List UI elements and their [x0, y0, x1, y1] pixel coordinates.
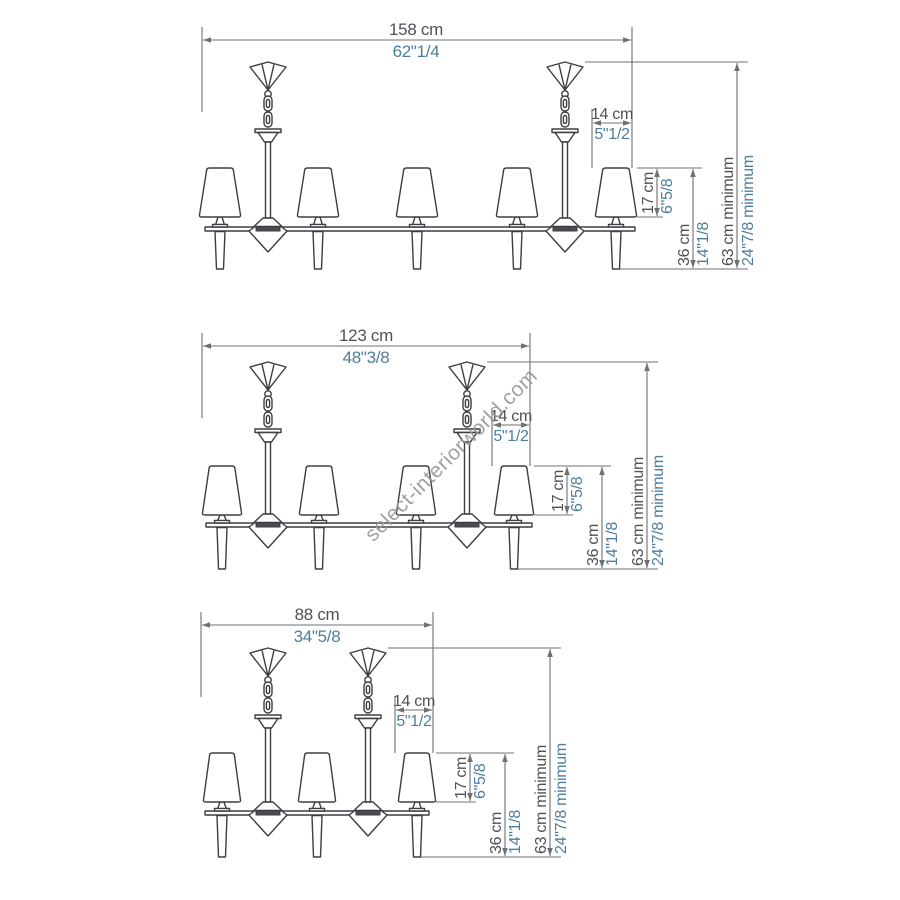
- fixture-art-layer: [199, 62, 636, 269]
- lamp-stem-spike: [312, 816, 322, 858]
- suspension-rod: [563, 142, 568, 218]
- body-height-label-cm: 36 cm: [676, 224, 693, 266]
- chain-link: [264, 396, 272, 411]
- ceiling-cone: [547, 62, 583, 90]
- min-height-label-inch: 24"7/8 minimum: [740, 155, 757, 266]
- suspension-rod: [366, 728, 371, 802]
- lamp-neck-flange: [311, 224, 326, 227]
- min-height-label-cm: 63 cm minimum: [720, 157, 737, 266]
- lamp-neck-flange: [215, 808, 230, 811]
- canopy-label-cm: 14 cm: [591, 106, 633, 123]
- chandelier-dimension-diagram: 158 cm62"1/414 cm5"1/217 cm6"5/836 cm14"…: [0, 0, 900, 900]
- lamp-neck-flange: [409, 520, 424, 523]
- lamp-neck-flange: [410, 224, 425, 227]
- canopy-label-inch: 5"1/2: [594, 126, 630, 143]
- lamp-stem-spike: [512, 232, 522, 270]
- ceiling-cone: [449, 362, 485, 390]
- ceiling-cone: [350, 648, 386, 676]
- chain-link: [264, 412, 272, 427]
- body-height-label-inch: 14"1/8: [507, 810, 524, 854]
- lamp-shade: [396, 168, 437, 217]
- lamp-neck-flange: [510, 224, 525, 227]
- lamp-stem-spike: [217, 816, 227, 858]
- lamp-neck-flange: [410, 808, 425, 811]
- shade-height-label-cm: 17 cm: [453, 757, 470, 799]
- chain-link: [264, 96, 272, 111]
- lamp-neck-flange: [312, 520, 327, 523]
- lamp-shade: [199, 168, 240, 217]
- min-height-label-cm: 63 cm minimum: [630, 457, 647, 566]
- dimension-diagram-page: 158 cm62"1/414 cm5"1/217 cm6"5/836 cm14"…: [0, 0, 900, 900]
- lamp-shade: [203, 753, 240, 802]
- lamp-neck-flange: [213, 224, 228, 227]
- width-label-cm: 158 cm: [389, 20, 443, 39]
- dimension-arrowhead: [521, 343, 529, 349]
- dimension-arrowhead: [424, 622, 432, 628]
- body-height-label-cm: 36 cm: [585, 524, 602, 566]
- canopy-label-cm: 14 cm: [393, 693, 435, 710]
- dimension-arrowhead: [599, 467, 605, 475]
- lamp-shade: [398, 753, 435, 802]
- chain-link: [264, 682, 272, 697]
- collar-taper: [358, 719, 378, 729]
- dimension-arrowhead: [502, 754, 508, 762]
- lamp-shade: [496, 168, 537, 217]
- lamp-stem-spike: [313, 232, 323, 270]
- dimension-arrowhead: [623, 37, 631, 43]
- lamp-neck-flange: [310, 808, 325, 811]
- lamp-shade: [299, 466, 338, 515]
- dimension-arrowhead: [203, 37, 211, 43]
- shade-height-label-cm: 17 cm: [640, 172, 657, 214]
- chandelier-drawing-158: 158 cm62"1/414 cm5"1/217 cm6"5/836 cm14"…: [199, 20, 757, 269]
- junction-cap: [354, 802, 382, 811]
- lamp-neck-flange: [215, 520, 230, 523]
- canopy-label-inch: 5"1/2: [396, 713, 432, 730]
- collar-taper: [555, 133, 575, 143]
- chandelier-drawing-123: 123 cm48"3/814 cm5"1/217 cm6"5/836 cm14"…: [202, 326, 667, 569]
- lamp-neck-flange: [609, 224, 624, 227]
- collar-taper: [258, 719, 278, 729]
- junction-cap: [254, 802, 282, 811]
- dimension-arrowhead: [547, 649, 553, 657]
- lamp-stem-spike: [412, 816, 422, 858]
- width-label-cm: 88 cm: [295, 605, 340, 624]
- ceiling-cone: [250, 362, 286, 390]
- dimension-arrowhead: [202, 622, 210, 628]
- lamp-shade: [297, 168, 338, 217]
- min-height-label-cm: 63 cm minimum: [533, 745, 550, 854]
- lamp-stem-spike: [217, 528, 227, 570]
- ceiling-cone: [250, 62, 286, 90]
- junction-cap: [254, 218, 282, 227]
- lamp-shade: [494, 466, 533, 515]
- chain-link: [364, 698, 372, 713]
- chain-link: [264, 698, 272, 713]
- body-height-label-inch: 14"1/8: [604, 522, 621, 566]
- chandelier-drawing-88: 88 cm34"5/814 cm5"1/217 cm6"5/836 cm14"1…: [201, 605, 570, 857]
- width-label-inch: 34"5/8: [294, 627, 341, 646]
- shade-height-label-inch: 6"5/8: [472, 763, 489, 799]
- lamp-stem-spike: [611, 232, 621, 270]
- chain-link: [561, 96, 569, 111]
- lamp-shade: [595, 168, 636, 217]
- chain-link: [463, 396, 471, 411]
- chain-link: [364, 682, 372, 697]
- width-label-inch: 48"3/8: [343, 348, 390, 367]
- lamp-shade: [202, 466, 241, 515]
- suspension-rod: [266, 442, 271, 514]
- junction-cap: [254, 514, 282, 523]
- min-height-label-inch: 24"7/8 minimum: [650, 455, 667, 566]
- dimension-arrowhead: [644, 363, 650, 371]
- dimension-arrowhead: [734, 63, 740, 71]
- lamp-stem-spike: [411, 528, 421, 570]
- dimension-arrowhead: [690, 169, 696, 177]
- suspension-rod: [266, 728, 271, 802]
- min-height-label-inch: 24"7/8 minimum: [553, 743, 570, 854]
- width-label-cm: 123 cm: [339, 326, 393, 345]
- shade-height-label-inch: 6"5/8: [569, 476, 586, 512]
- lamp-stem-spike: [412, 232, 422, 270]
- lamp-shade: [298, 753, 335, 802]
- width-label-inch: 62"1/4: [393, 42, 440, 61]
- collar-taper: [258, 433, 278, 443]
- canopy-label-inch: 5"1/2: [493, 428, 529, 445]
- lamp-stem-spike: [314, 528, 324, 570]
- body-height-label-inch: 14"1/8: [695, 222, 712, 266]
- chain-link: [561, 112, 569, 127]
- collar-taper: [258, 133, 278, 143]
- junction-cap: [453, 514, 481, 523]
- lamp-stem-spike: [509, 528, 519, 570]
- lamp-stem-spike: [215, 232, 225, 270]
- fixture-art-layer: [203, 648, 435, 857]
- shade-height-label-inch: 6"5/8: [659, 178, 676, 214]
- body-height-label-cm: 36 cm: [488, 812, 505, 854]
- shade-height-label-cm: 17 cm: [550, 470, 567, 512]
- chain-link: [264, 112, 272, 127]
- ceiling-cone: [250, 648, 286, 676]
- lamp-neck-flange: [507, 520, 522, 523]
- junction-cap: [551, 218, 579, 227]
- dimension-arrowhead: [203, 343, 211, 349]
- suspension-rod: [266, 142, 271, 218]
